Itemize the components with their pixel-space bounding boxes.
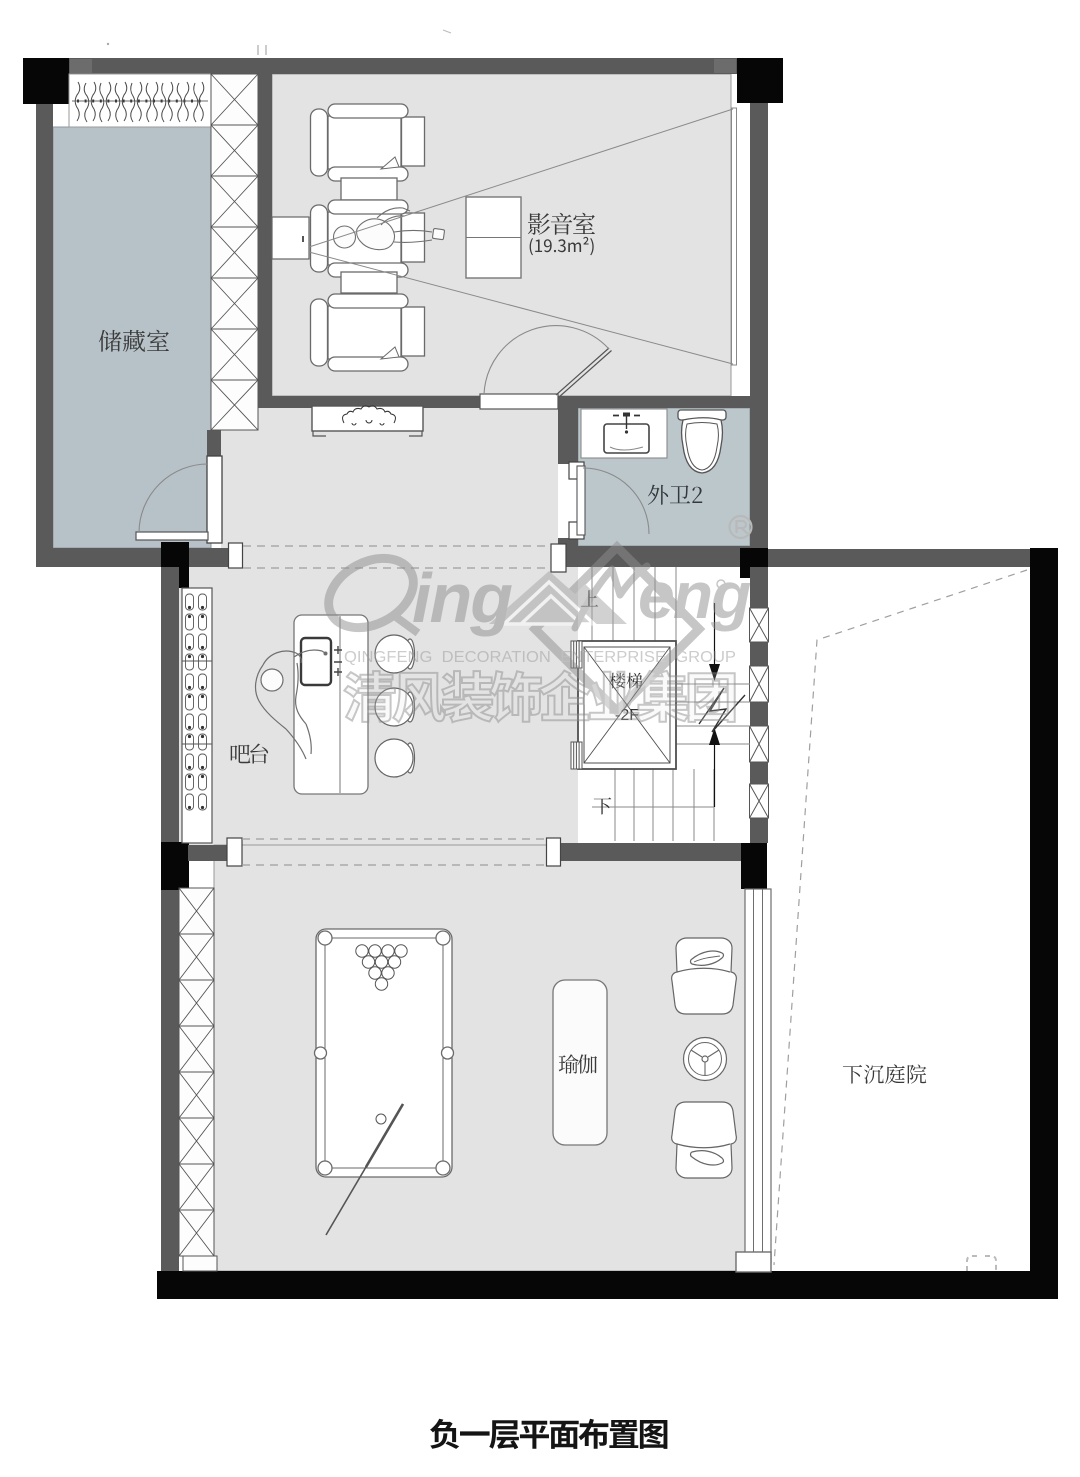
svg-text:ing: ing xyxy=(412,559,512,637)
svg-text:QINGFENG DECORATION ENTERPRI: QINGFENG DECORATION ENTERPRISE GROUP xyxy=(344,649,736,666)
svg-text:eng: eng xyxy=(638,558,751,632)
